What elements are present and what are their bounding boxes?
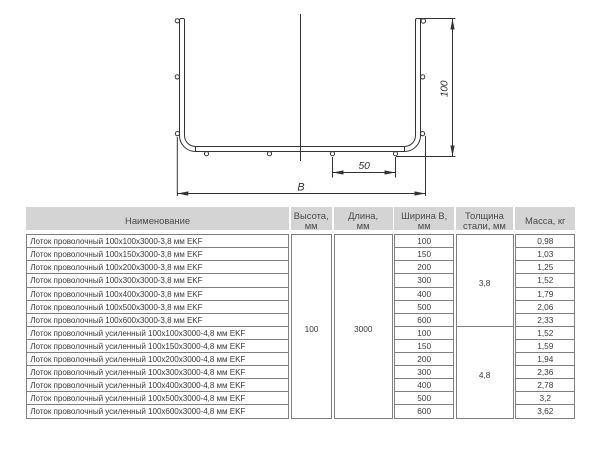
svg-text:100: 100 bbox=[439, 80, 450, 97]
svg-text:50: 50 bbox=[358, 161, 370, 172]
svg-text:B: B bbox=[297, 181, 304, 193]
